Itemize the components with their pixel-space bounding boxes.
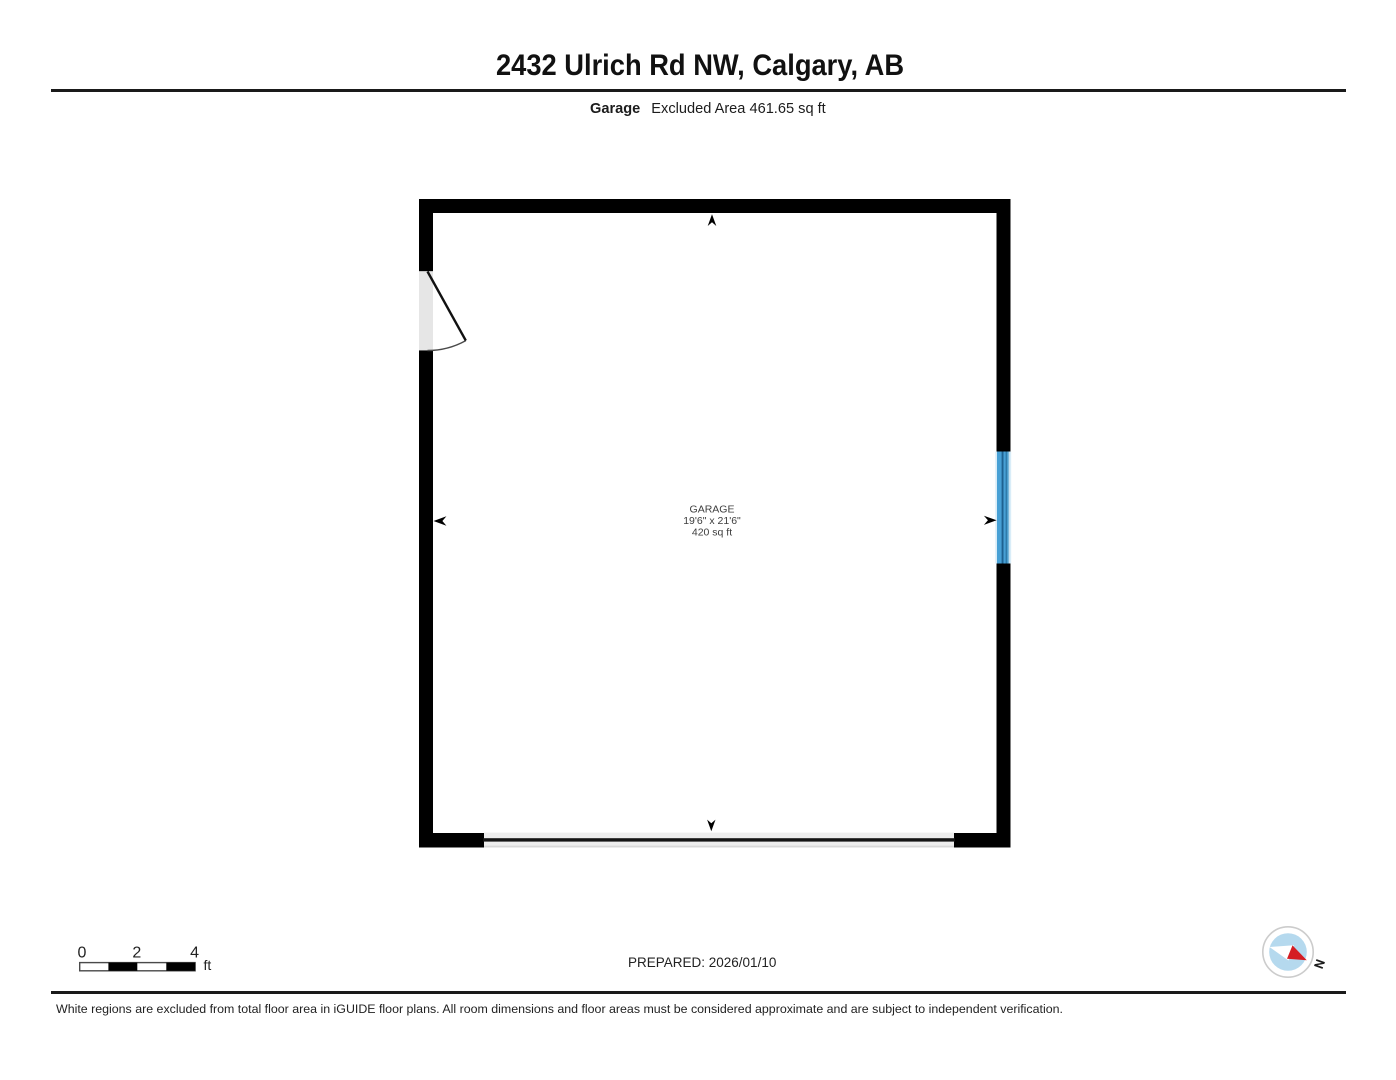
svg-text:19'6" x 21'6": 19'6" x 21'6" bbox=[683, 515, 741, 527]
svg-text:2: 2 bbox=[132, 945, 141, 962]
svg-text:GARAGE: GARAGE bbox=[690, 504, 735, 516]
svg-text:420 sq ft: 420 sq ft bbox=[692, 526, 732, 538]
svg-text:ft: ft bbox=[204, 957, 212, 973]
svg-text:0: 0 bbox=[78, 945, 87, 962]
svg-text:4: 4 bbox=[190, 945, 199, 962]
